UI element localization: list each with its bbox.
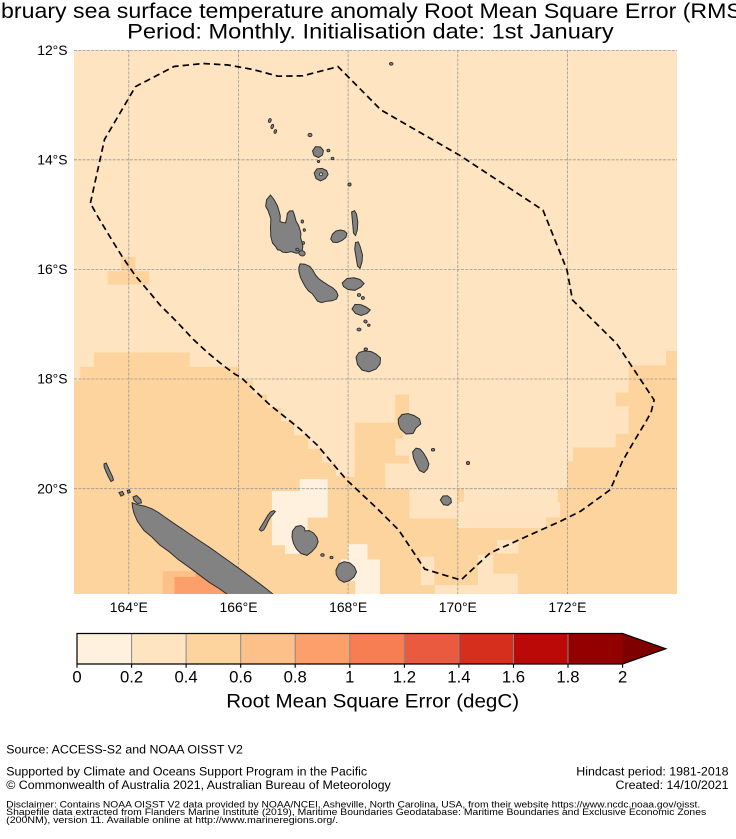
- svg-text:0.4: 0.4: [174, 667, 197, 686]
- svg-text:Root Mean Square Error (degC): Root Mean Square Error (degC): [226, 690, 519, 712]
- svg-text:Hindcast period: 1981-2018: Hindcast period: 1981-2018: [576, 764, 728, 778]
- svg-text:14°S: 14°S: [37, 152, 67, 168]
- svg-text:1.2: 1.2: [393, 667, 416, 686]
- svg-text:0.6: 0.6: [229, 667, 252, 686]
- svg-text:20°S: 20°S: [37, 480, 67, 496]
- svg-text:0.8: 0.8: [284, 667, 307, 686]
- svg-text:Source: ACCESS-S2 and NOAA OIS: Source: ACCESS-S2 and NOAA OISST V2: [6, 743, 243, 757]
- svg-text:168°E: 168°E: [329, 599, 367, 615]
- svg-text:12°S: 12°S: [37, 42, 67, 58]
- svg-text:February sea surface temperatu: February sea surface temperature anomaly…: [0, 0, 736, 23]
- svg-text:164°E: 164°E: [110, 599, 148, 615]
- svg-text:16°S: 16°S: [37, 261, 67, 277]
- svg-text:Period: Monthly. Initialisatio: Period: Monthly. Initialisation date: 1s…: [127, 21, 614, 44]
- svg-text:172°E: 172°E: [548, 599, 586, 615]
- svg-text:1.4: 1.4: [447, 667, 470, 686]
- svg-text:0.2: 0.2: [120, 667, 143, 686]
- svg-text:(200NM), version 11. Available: (200NM), version 11. Available online at…: [6, 815, 338, 825]
- svg-text:© Commonwealth of Australia 20: © Commonwealth of Australia 2021, Austra…: [6, 778, 391, 792]
- svg-text:1.6: 1.6: [502, 667, 525, 686]
- svg-text:0: 0: [72, 667, 81, 686]
- svg-text:2: 2: [618, 667, 627, 686]
- svg-text:1.8: 1.8: [556, 667, 579, 686]
- svg-text:1: 1: [345, 667, 354, 686]
- svg-text:170°E: 170°E: [439, 599, 477, 615]
- svg-text:166°E: 166°E: [220, 599, 258, 615]
- svg-text:18°S: 18°S: [37, 371, 67, 387]
- svg-text:Created: 14/10/2021: Created: 14/10/2021: [616, 778, 729, 792]
- svg-text:Supported by Climate and Ocean: Supported by Climate and Oceans Support …: [6, 764, 367, 778]
